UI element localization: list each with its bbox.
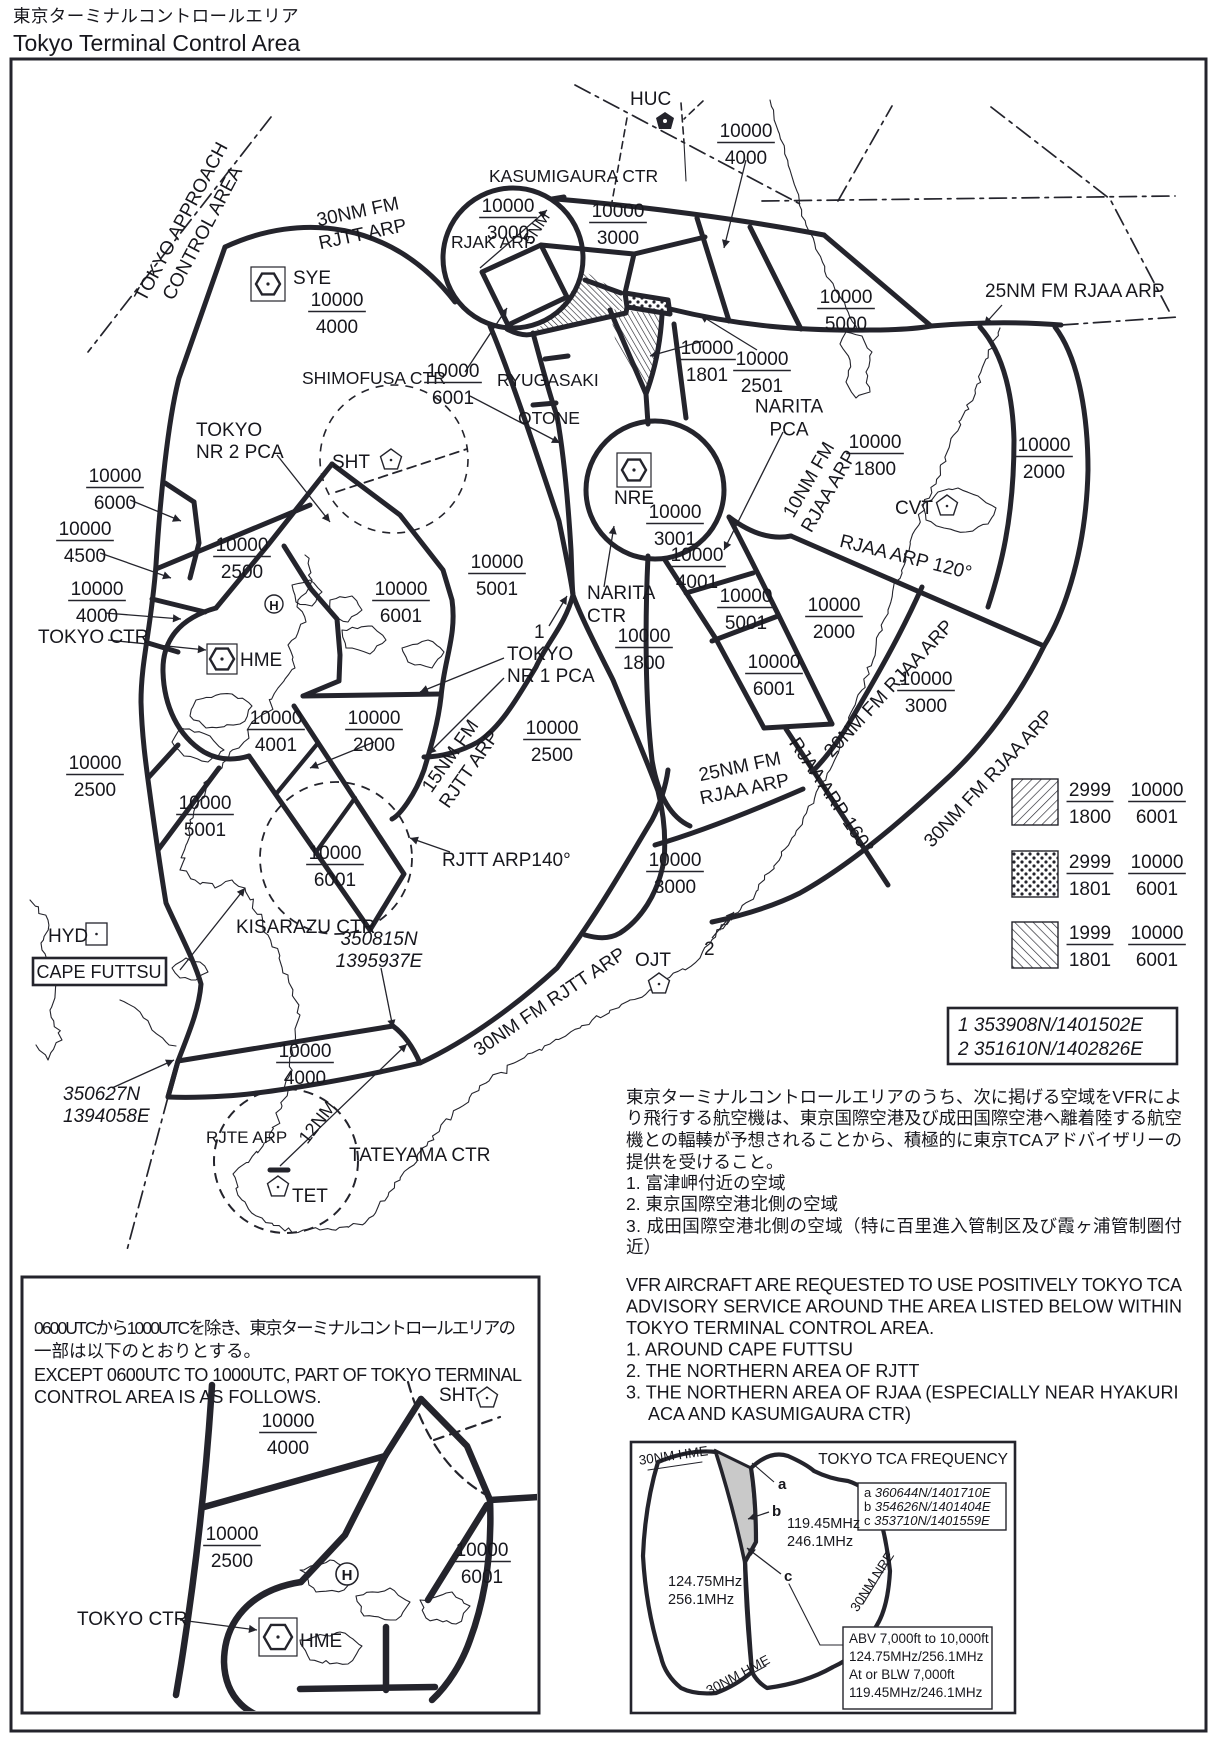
svg-text:10000: 10000: [1018, 435, 1071, 456]
svg-text:1800: 1800: [1069, 807, 1111, 828]
svg-text:SHT: SHT: [439, 1385, 477, 1406]
svg-text:b: b: [772, 1503, 781, 1520]
svg-text:H: H: [269, 598, 278, 613]
svg-text:10000: 10000: [456, 1540, 509, 1561]
svg-text:5001: 5001: [184, 820, 226, 841]
svg-text:4001: 4001: [676, 572, 718, 593]
svg-text:2000: 2000: [353, 735, 395, 756]
svg-text:10000: 10000: [1131, 780, 1184, 801]
svg-text:10000: 10000: [311, 290, 364, 311]
svg-text:2: 2: [704, 939, 715, 960]
svg-text:1. 富津岬付近の空域: 1. 富津岬付近の空域: [626, 1173, 785, 1193]
svg-text:6001: 6001: [432, 388, 474, 409]
svg-text:10000: 10000: [671, 545, 724, 566]
svg-text:HUC: HUC: [630, 89, 671, 110]
svg-text:TATEYAMA CTR: TATEYAMA CTR: [349, 1145, 490, 1166]
svg-text:4500: 4500: [64, 546, 106, 567]
svg-text:1800: 1800: [854, 459, 896, 480]
svg-text:ADVISORY SERVICE AROUND THE: ADVISORY SERVICE AROUND THE AREA LISTED …: [626, 1297, 1182, 1317]
svg-text:RJTT ARP140°: RJTT ARP140°: [442, 850, 571, 871]
svg-text:4000: 4000: [284, 1068, 326, 1089]
svg-text:1800: 1800: [623, 653, 665, 674]
svg-text:4000: 4000: [725, 148, 767, 169]
svg-text:10000: 10000: [526, 718, 579, 739]
svg-text:2500: 2500: [531, 745, 573, 766]
svg-text:10000: 10000: [71, 579, 124, 600]
svg-text:10000: 10000: [1131, 923, 1184, 944]
svg-text:4000: 4000: [316, 317, 358, 338]
svg-text:0600UTCから1000UTCを除き、東京ターミナルコント: 0600UTCから1000UTCを除き、東京ターミナルコントロールエリアの: [34, 1318, 516, 1338]
svg-text:1999: 1999: [1069, 923, 1111, 944]
svg-text:2999: 2999: [1069, 780, 1111, 801]
svg-text:OJT: OJT: [635, 950, 671, 971]
svg-text:119.45MHz/246.1MHz: 119.45MHz/246.1MHz: [849, 1685, 983, 1700]
svg-text:10000: 10000: [59, 519, 112, 540]
svg-text:提供を受けること。: 提供を受けること。: [626, 1152, 784, 1172]
svg-text:り飛行する航空機は、東京国際空港及び成田国際空港へ離着陸する: り飛行する航空機は、東京国際空港及び成田国際空港へ離着陸する航空: [626, 1108, 1182, 1128]
svg-text:10000: 10000: [649, 850, 702, 871]
svg-text:10000: 10000: [649, 502, 702, 523]
svg-text:RYUGASAKI: RYUGASAKI: [497, 370, 599, 390]
svg-text:東京ターミナルコントロールエリア: 東京ターミナルコントロールエリア: [13, 6, 299, 26]
svg-text:近）: 近）: [626, 1237, 661, 1257]
svg-text:10000: 10000: [279, 1041, 332, 1062]
svg-text:10000: 10000: [618, 626, 671, 647]
svg-text:25NM FM RJAA ARP: 25NM FM RJAA ARP: [985, 281, 1165, 302]
svg-text:2500: 2500: [221, 562, 263, 583]
svg-text:246.1MHz: 246.1MHz: [787, 1534, 853, 1550]
svg-text:6001: 6001: [380, 606, 422, 627]
svg-text:1. AROUND CAPE FUTTSU: 1. AROUND CAPE FUTTSU: [626, 1340, 853, 1360]
svg-text:6001: 6001: [461, 1567, 503, 1588]
svg-text:6001: 6001: [753, 679, 795, 700]
svg-text:NARITA: NARITA: [587, 583, 656, 604]
svg-text:3000: 3000: [654, 877, 696, 898]
svg-text:10000: 10000: [250, 708, 303, 729]
svg-text:EXCEPT 0600UTC TO 1000UTC, PAR: EXCEPT 0600UTC TO 1000UTC, PART OF TOKYO…: [34, 1365, 522, 1385]
svg-text:SHT: SHT: [332, 452, 370, 473]
svg-text:10000: 10000: [309, 843, 362, 864]
svg-text:TOKYO TCA FREQUENCY: TOKYO TCA FREQUENCY: [818, 1451, 1008, 1468]
svg-text:5001: 5001: [476, 579, 518, 600]
svg-text:6001: 6001: [1136, 807, 1178, 828]
svg-text:5001: 5001: [725, 613, 767, 634]
svg-text:1395937E: 1395937E: [336, 951, 423, 972]
svg-text:4000: 4000: [76, 606, 118, 627]
svg-text:TOKYO CTR: TOKYO CTR: [77, 1609, 188, 1630]
svg-text:4001: 4001: [255, 735, 297, 756]
svg-text:4000: 4000: [267, 1438, 309, 1459]
svg-text:6001: 6001: [314, 870, 356, 891]
svg-text:TOKYO CTR: TOKYO CTR: [38, 627, 149, 648]
svg-text:10000: 10000: [1131, 852, 1184, 873]
svg-text:1801: 1801: [686, 365, 728, 386]
svg-text:a: a: [778, 1476, 787, 1493]
svg-text:2999: 2999: [1069, 852, 1111, 873]
svg-text:SYE: SYE: [293, 268, 331, 289]
svg-text:6000: 6000: [94, 493, 136, 514]
svg-text:10000: 10000: [681, 338, 734, 359]
svg-text:2. 東京国際空港北側の空域: 2. 東京国際空港北側の空域: [626, 1194, 838, 1214]
svg-text:2. THE NORTHERN AREA OF RJTT: 2. THE NORTHERN AREA OF RJTT: [626, 1361, 919, 1381]
svg-text:10000: 10000: [179, 793, 232, 814]
svg-text:OTONE: OTONE: [518, 408, 580, 428]
svg-text:NR 1 PCA: NR 1 PCA: [507, 666, 595, 687]
svg-text:5000: 5000: [825, 314, 867, 335]
svg-text:10000: 10000: [482, 196, 535, 217]
svg-text:1394058E: 1394058E: [63, 1106, 150, 1127]
svg-text:SHIMOFUSA CTR: SHIMOFUSA CTR: [302, 368, 446, 388]
svg-text:6001: 6001: [1136, 879, 1178, 900]
svg-text:機との輻輳が予想されることから、積極的に東京TCAアドバイザ: 機との輻輳が予想されることから、積極的に東京TCAアドバイザリーの: [626, 1130, 1182, 1150]
svg-text:124.75MHz/256.1MHz: 124.75MHz/256.1MHz: [849, 1649, 984, 1664]
svg-text:一部は以下のとおりとする。: 一部は以下のとおりとする。: [34, 1341, 261, 1361]
svg-text:350627N: 350627N: [63, 1084, 140, 1105]
svg-text:RJTE ARP: RJTE ARP: [206, 1128, 287, 1147]
svg-text:PCA: PCA: [769, 420, 808, 441]
svg-text:2500: 2500: [211, 1551, 253, 1572]
svg-text:10000: 10000: [69, 753, 122, 774]
svg-text:a 360644N/1401710E: a 360644N/1401710E: [864, 1485, 991, 1500]
svg-text:TOKYO: TOKYO: [507, 644, 573, 665]
svg-text:CVT: CVT: [895, 498, 933, 519]
svg-text:3. 成田国際空港北側の空域（特に百里進入管制区及び霞ヶ浦: 3. 成田国際空港北側の空域（特に百里進入管制区及び霞ヶ浦管制圏付: [626, 1216, 1182, 1236]
svg-text:Tokyo Terminal Control Area: Tokyo Terminal Control Area: [13, 30, 300, 56]
svg-text:TOKYO TERMINAL CONTROL AREA.: TOKYO TERMINAL CONTROL AREA.: [626, 1318, 934, 1338]
svg-text:2501: 2501: [741, 376, 783, 397]
svg-text:NARITA: NARITA: [755, 397, 824, 418]
svg-text:10000: 10000: [736, 349, 789, 370]
svg-text:c 353710N/1401559E: c 353710N/1401559E: [864, 1513, 990, 1528]
svg-text:TOKYO: TOKYO: [196, 420, 262, 441]
svg-text:256.1MHz: 256.1MHz: [668, 1592, 734, 1608]
svg-text:10000: 10000: [262, 1411, 315, 1432]
svg-text:KASUMIGAURA CTR: KASUMIGAURA CTR: [489, 166, 658, 186]
svg-text:10000: 10000: [748, 652, 801, 673]
svg-text:2000: 2000: [1023, 462, 1065, 483]
svg-text:10000: 10000: [849, 432, 902, 453]
svg-text:VFR AIRCRAFT ARE REQUESTED TO: VFR AIRCRAFT ARE REQUESTED TO USE POSITI…: [626, 1275, 1182, 1295]
svg-text:HYD: HYD: [48, 926, 88, 947]
svg-text:6001: 6001: [1136, 950, 1178, 971]
svg-text:350815N: 350815N: [340, 929, 417, 950]
svg-text:1 353908N/1401502E: 1 353908N/1401502E: [958, 1015, 1143, 1036]
svg-text:b 354626N/1401404E: b 354626N/1401404E: [864, 1499, 991, 1514]
svg-text:TET: TET: [292, 1186, 328, 1207]
svg-text:CONTROL AREA IS AS FOLLOWS.: CONTROL AREA IS AS FOLLOWS.: [34, 1387, 321, 1407]
svg-text:CAPE FUTTSU: CAPE FUTTSU: [36, 962, 161, 982]
svg-text:3000: 3000: [905, 696, 947, 717]
svg-text:10000: 10000: [375, 579, 428, 600]
svg-text:H: H: [342, 1567, 353, 1584]
svg-text:10000: 10000: [720, 121, 773, 142]
svg-text:10000: 10000: [89, 466, 142, 487]
svg-text:1: 1: [534, 622, 545, 643]
svg-text:1801: 1801: [1069, 950, 1111, 971]
svg-text:ACA AND KASUMIGAURA CTR): ACA AND KASUMIGAURA CTR): [648, 1404, 911, 1424]
svg-text:CTR: CTR: [587, 606, 626, 627]
svg-text:HME: HME: [240, 650, 282, 671]
svg-text:10000: 10000: [206, 1524, 259, 1545]
svg-text:At or BLW 7,000ft: At or BLW 7,000ft: [849, 1667, 955, 1682]
svg-text:124.75MHz: 124.75MHz: [668, 1574, 742, 1590]
svg-text:10000: 10000: [427, 361, 480, 382]
svg-text:10000: 10000: [820, 287, 873, 308]
svg-text:東京ターミナルコントロールエリアのうち、次に掲げる空域をVF: 東京ターミナルコントロールエリアのうち、次に掲げる空域をVFRによ: [626, 1087, 1182, 1107]
svg-text:10000: 10000: [471, 552, 524, 573]
svg-text:NR 2 PCA: NR 2 PCA: [196, 442, 284, 463]
svg-text:10000: 10000: [216, 535, 269, 556]
svg-text:2 351610N/1402826E: 2 351610N/1402826E: [957, 1039, 1143, 1060]
svg-text:10000: 10000: [808, 595, 861, 616]
svg-text:10000: 10000: [720, 586, 773, 607]
svg-text:HME: HME: [300, 1631, 342, 1652]
svg-text:2000: 2000: [813, 622, 855, 643]
svg-text:c: c: [784, 1568, 792, 1585]
svg-text:119.45MHz: 119.45MHz: [787, 1516, 860, 1532]
svg-text:10000: 10000: [592, 201, 645, 222]
svg-text:ABV 7,000ft to 10,000ft: ABV 7,000ft to 10,000ft: [849, 1631, 989, 1646]
svg-text:3000: 3000: [597, 228, 639, 249]
svg-text:2500: 2500: [74, 780, 116, 801]
svg-text:10000: 10000: [348, 708, 401, 729]
svg-text:1801: 1801: [1069, 879, 1111, 900]
svg-text:3. THE NORTHERN AREA OF RJAA: 3. THE NORTHERN AREA OF RJAA (ESPECIALLY…: [626, 1383, 1179, 1403]
